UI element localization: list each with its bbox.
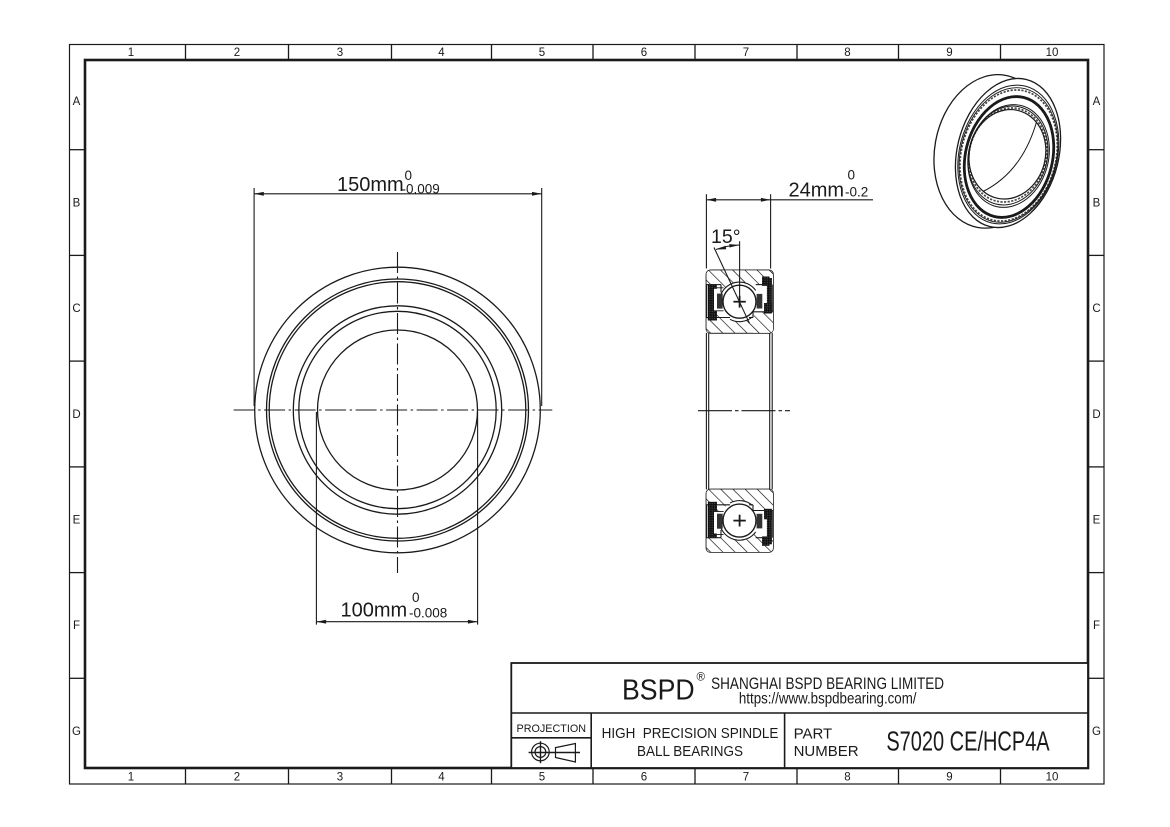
svg-text:150mm: 150mm (337, 174, 404, 196)
svg-text:https://www.bspdbearing.com/: https://www.bspdbearing.com/ (739, 691, 918, 708)
svg-text:6: 6 (641, 772, 647, 784)
svg-text:4: 4 (438, 47, 445, 59)
svg-text:-0.2: -0.2 (845, 185, 868, 200)
svg-text:8: 8 (844, 47, 850, 59)
svg-text:5: 5 (539, 47, 545, 59)
svg-text:HIGH PRECISION SPINDLE: HIGH PRECISION SPINDLE (602, 725, 779, 742)
svg-text:B: B (73, 198, 81, 210)
svg-text:10: 10 (1046, 47, 1059, 59)
svg-text:6: 6 (641, 47, 647, 59)
svg-text:E: E (1093, 515, 1101, 527)
svg-text:0: 0 (848, 168, 856, 183)
svg-text:NUMBER: NUMBER (794, 743, 859, 760)
svg-text:A: A (73, 96, 81, 108)
svg-text:15°: 15° (711, 226, 741, 248)
svg-text:9: 9 (946, 772, 952, 784)
svg-text:A: A (1093, 96, 1101, 108)
svg-text:G: G (1092, 726, 1101, 738)
svg-text:BSPD: BSPD (622, 673, 695, 705)
svg-text:8: 8 (844, 772, 850, 784)
svg-text:100mm: 100mm (341, 600, 408, 622)
svg-text:S7020 CE/HCP4A: S7020 CE/HCP4A (886, 727, 1049, 758)
svg-text:10: 10 (1046, 772, 1059, 784)
svg-text:D: D (72, 409, 80, 421)
svg-text:5: 5 (539, 772, 545, 784)
svg-text:PART: PART (794, 725, 833, 742)
svg-text:®: ® (697, 672, 706, 684)
svg-text:2: 2 (234, 47, 240, 59)
svg-text:1: 1 (128, 772, 134, 784)
svg-text:BALL BEARINGS: BALL BEARINGS (637, 743, 743, 760)
svg-text:2: 2 (234, 772, 240, 784)
svg-text:7: 7 (743, 772, 749, 784)
svg-text:7: 7 (743, 47, 749, 59)
svg-text:E: E (73, 515, 81, 527)
svg-text:G: G (72, 726, 81, 738)
svg-text:24mm: 24mm (789, 180, 845, 202)
svg-text:F: F (73, 620, 80, 632)
svg-text:3: 3 (337, 772, 343, 784)
svg-text:1: 1 (128, 47, 134, 59)
svg-text:0: 0 (412, 590, 420, 605)
svg-text:D: D (1092, 409, 1100, 421)
svg-text:-0.008: -0.008 (409, 606, 447, 621)
svg-text:9: 9 (946, 47, 952, 59)
svg-text:3: 3 (337, 47, 343, 59)
svg-text:4: 4 (438, 772, 445, 784)
svg-text:F: F (1093, 620, 1100, 632)
svg-text:C: C (1092, 303, 1100, 315)
svg-text:PROJECTION: PROJECTION (517, 723, 587, 735)
svg-text:-0.009: -0.009 (402, 182, 440, 197)
svg-text:B: B (1093, 198, 1101, 210)
svg-text:C: C (72, 303, 80, 315)
